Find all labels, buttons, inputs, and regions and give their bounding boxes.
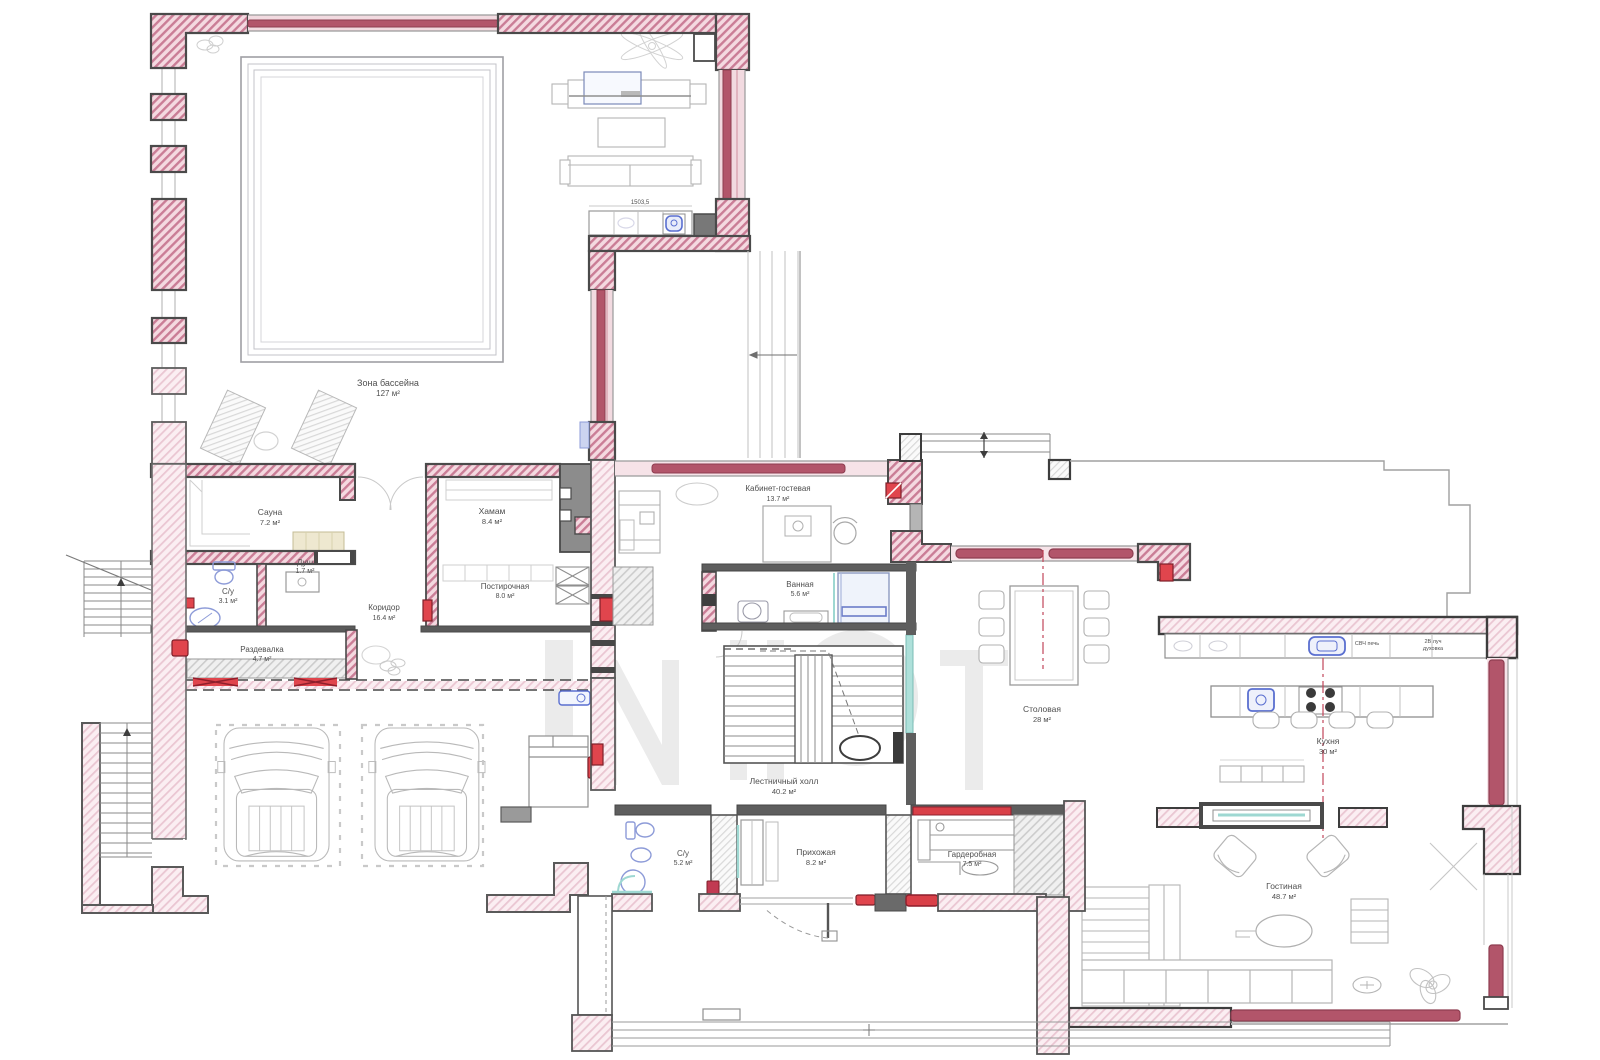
svg-text:1503,5: 1503,5	[631, 200, 650, 206]
svg-text:16.4 м²: 16.4 м²	[373, 615, 396, 622]
svg-text:40.2 м²: 40.2 м²	[772, 787, 797, 796]
svg-text:127 м²: 127 м²	[376, 389, 400, 398]
svg-text:30 м²: 30 м²	[1319, 747, 1338, 756]
svg-text:Раздевалка: Раздевалка	[240, 645, 284, 654]
svg-text:Прихожая: Прихожая	[796, 847, 836, 857]
svg-text:Хамам: Хамам	[479, 506, 506, 516]
svg-text:3.1 м²: 3.1 м²	[219, 598, 238, 605]
svg-text:28 м²: 28 м²	[1033, 715, 1052, 724]
svg-text:Сауна: Сауна	[258, 507, 283, 517]
svg-text:Гостиная: Гостиная	[1266, 881, 1302, 891]
svg-text:13.7 м²: 13.7 м²	[767, 496, 790, 503]
svg-text:8.4 м²: 8.4 м²	[482, 517, 503, 526]
svg-text:Кухня: Кухня	[1317, 736, 1340, 746]
svg-text:Кабинет-гостевая: Кабинет-гостевая	[745, 484, 810, 493]
svg-text:Коридор: Коридор	[368, 603, 400, 612]
svg-text:Ванная: Ванная	[786, 580, 813, 589]
svg-text:5.6 м²: 5.6 м²	[791, 591, 810, 598]
svg-text:2В луч: 2В луч	[1424, 639, 1441, 645]
svg-text:7.2 м²: 7.2 м²	[260, 518, 281, 527]
svg-text:С/у: С/у	[677, 849, 689, 858]
svg-text:Постирочная: Постирочная	[481, 582, 529, 591]
svg-text:Лестничный холл: Лестничный холл	[750, 776, 819, 786]
svg-text:7.5 м²: 7.5 м²	[963, 861, 982, 868]
svg-text:СВЧ печь: СВЧ печь	[1355, 641, 1379, 647]
svg-text:48.7 м²: 48.7 м²	[1272, 892, 1297, 901]
svg-text:духовка: духовка	[1423, 646, 1444, 652]
svg-text:Столовая: Столовая	[1023, 704, 1061, 714]
svg-text:4.7 м²: 4.7 м²	[253, 656, 272, 663]
svg-text:Гардеробная: Гардеробная	[948, 850, 996, 859]
svg-text:5.2 м²: 5.2 м²	[674, 860, 693, 867]
svg-text:1.7 м²: 1.7 м²	[296, 568, 315, 575]
svg-text:Зона бассейна: Зона бассейна	[357, 378, 419, 388]
svg-text:8.2 м²: 8.2 м²	[806, 858, 827, 867]
svg-text:8.0 м²: 8.0 м²	[496, 593, 515, 600]
svg-text:С/у: С/у	[222, 587, 234, 596]
svg-text:Душ: Душ	[297, 558, 313, 567]
